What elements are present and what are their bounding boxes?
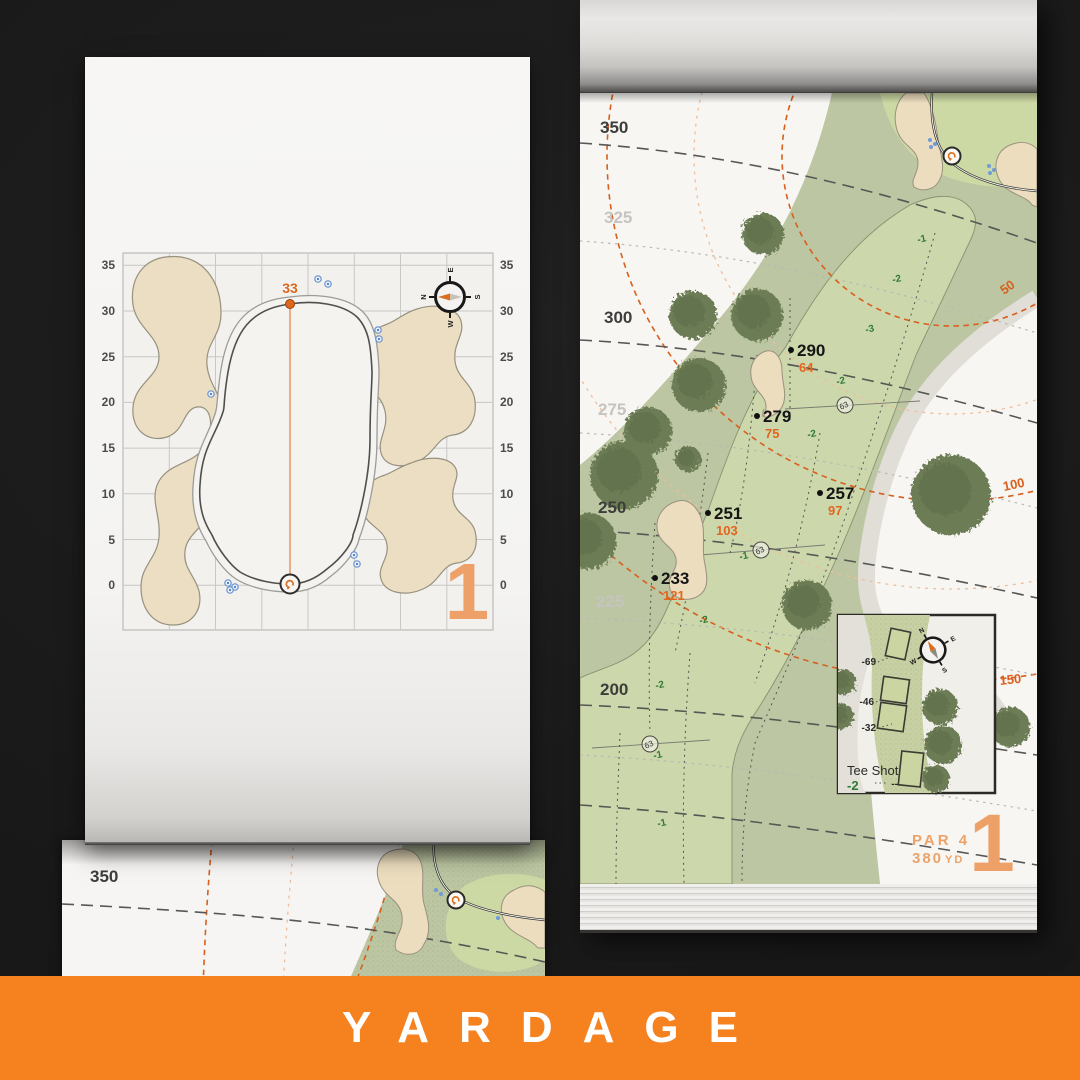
tee-distance: --	[891, 779, 898, 790]
marker-sub: 121	[663, 588, 685, 603]
arc-label: 150	[999, 671, 1022, 688]
marker-sub: 103	[716, 523, 738, 538]
compass-w: W	[446, 320, 455, 328]
tee-shot-title: Tee Shot	[847, 763, 899, 778]
page-curl	[580, 0, 1037, 93]
marker-main: 279	[763, 407, 791, 426]
back-of-green-dot	[286, 300, 295, 309]
hole-info: PAR 4 380YD 1	[912, 798, 1015, 884]
distance-label: 350	[600, 118, 628, 137]
axis-label: 10	[102, 487, 116, 501]
distance-label: 250	[598, 498, 626, 517]
hole-number: 1	[969, 798, 1015, 884]
marker-main: 251	[714, 504, 742, 523]
distance-label: 275	[598, 400, 626, 419]
marker-main: 290	[797, 341, 825, 360]
marker-main: 233	[661, 569, 689, 588]
green-detail-map: 35 30 25 20 15 10 5 0 35 30 25 20 15 10 …	[85, 57, 530, 842]
tee-shot-slope: -2	[847, 778, 859, 793]
axis-label: 15	[500, 441, 514, 455]
axis-label: 5	[500, 533, 507, 547]
par-label: PAR 4	[912, 832, 970, 849]
hole-map: 50 100 150	[580, 93, 1037, 884]
hole-map-page: 50 100 150	[580, 93, 1037, 884]
banner: YARDAGE	[0, 976, 1080, 1080]
marker-sub: 97	[828, 503, 842, 518]
distance-label: 350	[90, 867, 118, 886]
yardage-label: 380YD	[912, 850, 964, 867]
axis-label: 30	[500, 304, 514, 318]
distance-label: 325	[604, 208, 632, 227]
axis-label: 30	[102, 304, 116, 318]
right-booklet: 50 100 150	[580, 0, 1037, 933]
marker-sub: 75	[765, 426, 779, 441]
axis-label: 15	[102, 441, 116, 455]
axis-label: 25	[102, 350, 116, 364]
front-of-green-marker	[281, 575, 300, 594]
axis-label: 35	[102, 258, 116, 272]
distance-label: 300	[604, 308, 632, 327]
compass-e: E	[446, 267, 455, 272]
banner-title: YARDAGE	[0, 976, 1080, 1080]
axis-label: 5	[108, 533, 115, 547]
green-detail-page: 35 30 25 20 15 10 5 0 35 30 25 20 15 10 …	[85, 57, 530, 842]
green-depth-value: 33	[282, 280, 298, 296]
page-stack-edge	[580, 884, 1037, 933]
compass-n: N	[419, 294, 428, 299]
distance-label: 200	[600, 680, 628, 699]
pin-marker	[944, 148, 961, 165]
marker-main: 257	[826, 484, 854, 503]
axis-label: 10	[500, 487, 514, 501]
pin-marker	[448, 892, 465, 909]
compass-s: S	[473, 294, 482, 299]
axis-label: 0	[500, 578, 507, 592]
axis-label: 20	[102, 395, 116, 409]
tee-distance: -46	[860, 697, 875, 708]
hole-number: 1	[445, 547, 490, 636]
yardage-book-mockup: 350 325 35 30 25 20 15 10 5 0	[0, 0, 1080, 1080]
left-booklet: 350 325 35 30 25 20 15 10 5 0	[62, 40, 545, 976]
axis-label: 20	[500, 395, 514, 409]
axis-label: 0	[108, 578, 115, 592]
distance-label: 225	[596, 592, 624, 611]
tee-distance: -32	[862, 723, 877, 734]
marker-sub: 64	[799, 360, 814, 375]
axis-label: 35	[500, 258, 514, 272]
tee-distance: -69	[862, 657, 877, 668]
axis-label: 25	[500, 350, 514, 364]
tee-shot-inset: -69 -46 -32 -- N E	[828, 615, 995, 793]
arc-label: 100	[1002, 475, 1026, 494]
